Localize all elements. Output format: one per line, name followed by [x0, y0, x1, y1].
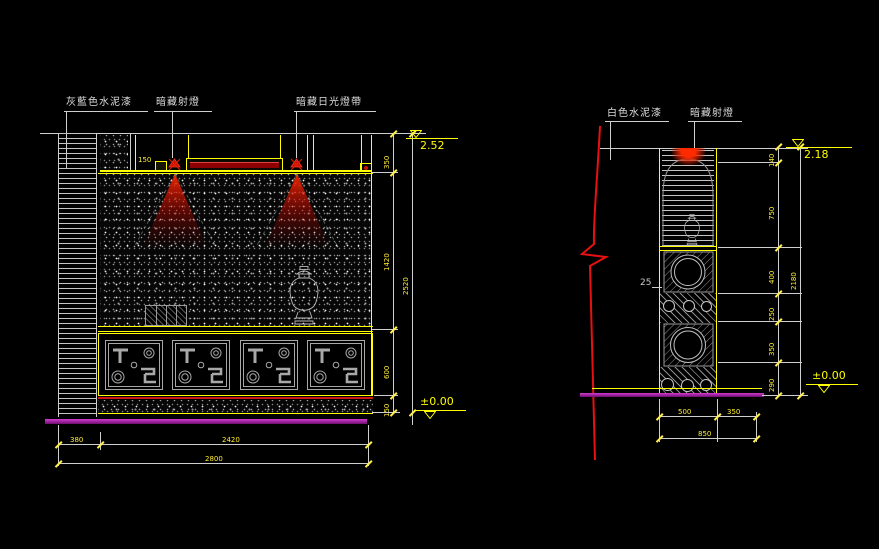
right-section: 白色水泥漆 暗藏射燈: [0, 0, 879, 549]
ext-line: [717, 399, 718, 442]
dim-line: [659, 438, 756, 439]
dim-value: 350: [727, 409, 740, 416]
cad-canvas[interactable]: 灰藍色水泥漆 暗藏射燈 暗藏日光燈帶 150: [0, 0, 879, 549]
dim-total: 850: [698, 431, 711, 438]
right-horizontal-dimensions: 500 350 850: [0, 0, 879, 549]
dim-line: [659, 416, 756, 417]
dim-value: 500: [678, 409, 691, 416]
